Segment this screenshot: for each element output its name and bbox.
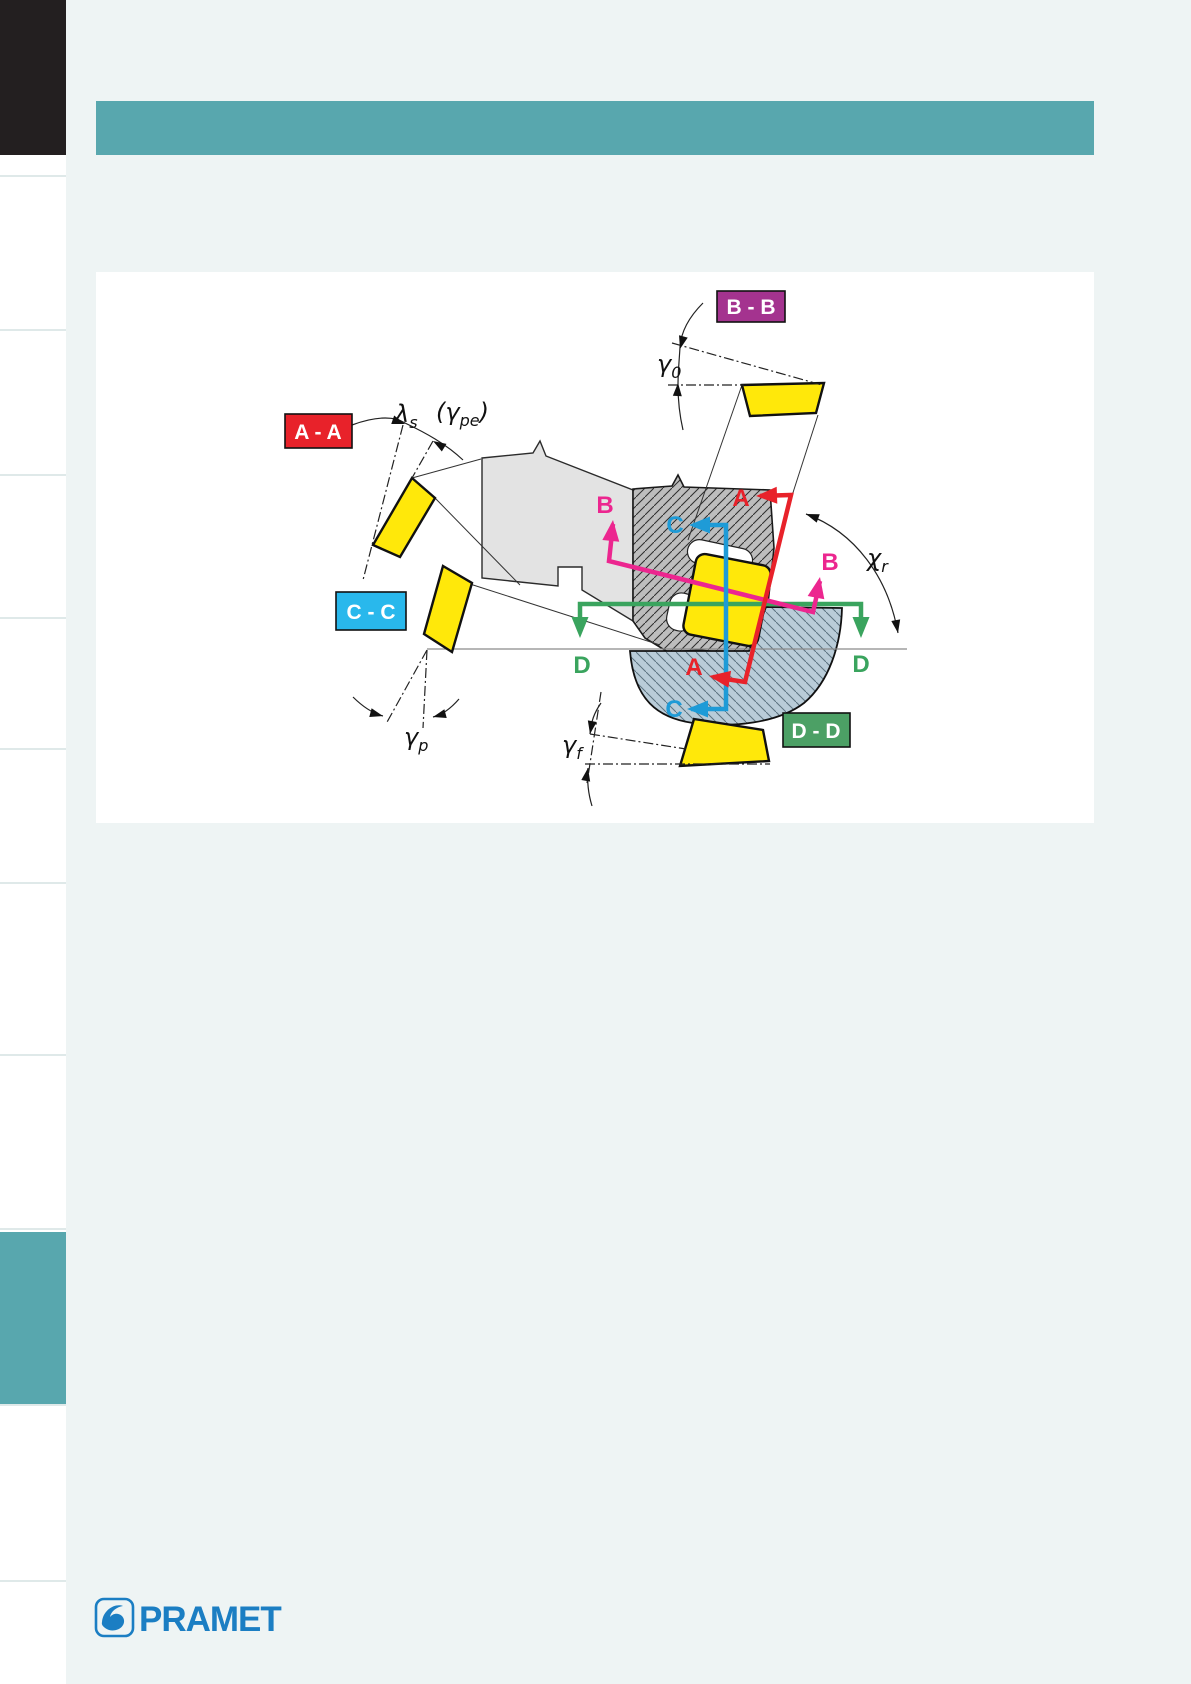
sidebar-separator xyxy=(0,175,66,177)
section-box-dd: D - D xyxy=(783,713,850,747)
marker-a-top: A xyxy=(732,485,749,512)
sidebar-separator xyxy=(0,1228,66,1230)
svg-text:D - D: D - D xyxy=(792,720,841,743)
svg-text:A - A: A - A xyxy=(294,421,341,444)
section-cc-insert xyxy=(424,566,472,652)
sidebar-separator xyxy=(0,617,66,619)
marker-b-left: B xyxy=(596,492,613,519)
chapter-corner-tab xyxy=(0,0,66,155)
angle-gamma-pe: (γpe) xyxy=(436,398,489,430)
section-box-bb: B - B xyxy=(717,291,785,322)
marker-a-bottom: A xyxy=(685,654,702,681)
section-bb-insert xyxy=(742,383,824,416)
sidebar-separator xyxy=(0,1580,66,1582)
tool-geometry-diagram: D D B B C C xyxy=(96,272,1094,823)
diagram-panel: D D B B C C xyxy=(96,272,1094,823)
marker-c-bottom: C xyxy=(665,696,682,723)
sidebar-separator xyxy=(0,474,66,476)
logo-swoosh-icon xyxy=(102,1605,124,1630)
sidebar-tab-column xyxy=(0,0,66,1684)
angle-chi-r: χr xyxy=(865,544,889,576)
catalog-page: D D B B C C xyxy=(0,0,1191,1684)
pramet-logo: PRAMET xyxy=(93,1594,323,1642)
angle-gamma-0: γ0 xyxy=(657,350,681,382)
sidebar-separator xyxy=(0,748,66,750)
sidebar-active-tab xyxy=(0,1232,66,1404)
chapter-header-bar xyxy=(96,101,1094,155)
section-dd-insert xyxy=(680,719,769,766)
angle-gamma-f: γf xyxy=(562,731,584,763)
logo-text: PRAMET xyxy=(139,1600,281,1639)
angle-gamma-p: γp xyxy=(404,723,428,755)
sidebar-separator xyxy=(0,329,66,331)
svg-text:C - C: C - C xyxy=(347,601,396,624)
sidebar-separator xyxy=(0,882,66,884)
marker-b-right: B xyxy=(821,549,838,576)
marker-d-right: D xyxy=(852,651,869,678)
section-box-aa: A - A xyxy=(285,414,352,448)
marker-d-left: D xyxy=(573,652,590,679)
svg-text:B - B: B - B xyxy=(727,296,776,319)
section-aa-insert xyxy=(373,478,435,557)
sidebar-separator xyxy=(0,1054,66,1056)
sidebar-separator xyxy=(0,1404,66,1406)
angle-lambda-s: λs xyxy=(393,400,418,432)
marker-c-top: C xyxy=(666,512,683,539)
pramet-logo-svg: PRAMET xyxy=(93,1594,323,1642)
section-box-cc: C - C xyxy=(336,592,406,630)
